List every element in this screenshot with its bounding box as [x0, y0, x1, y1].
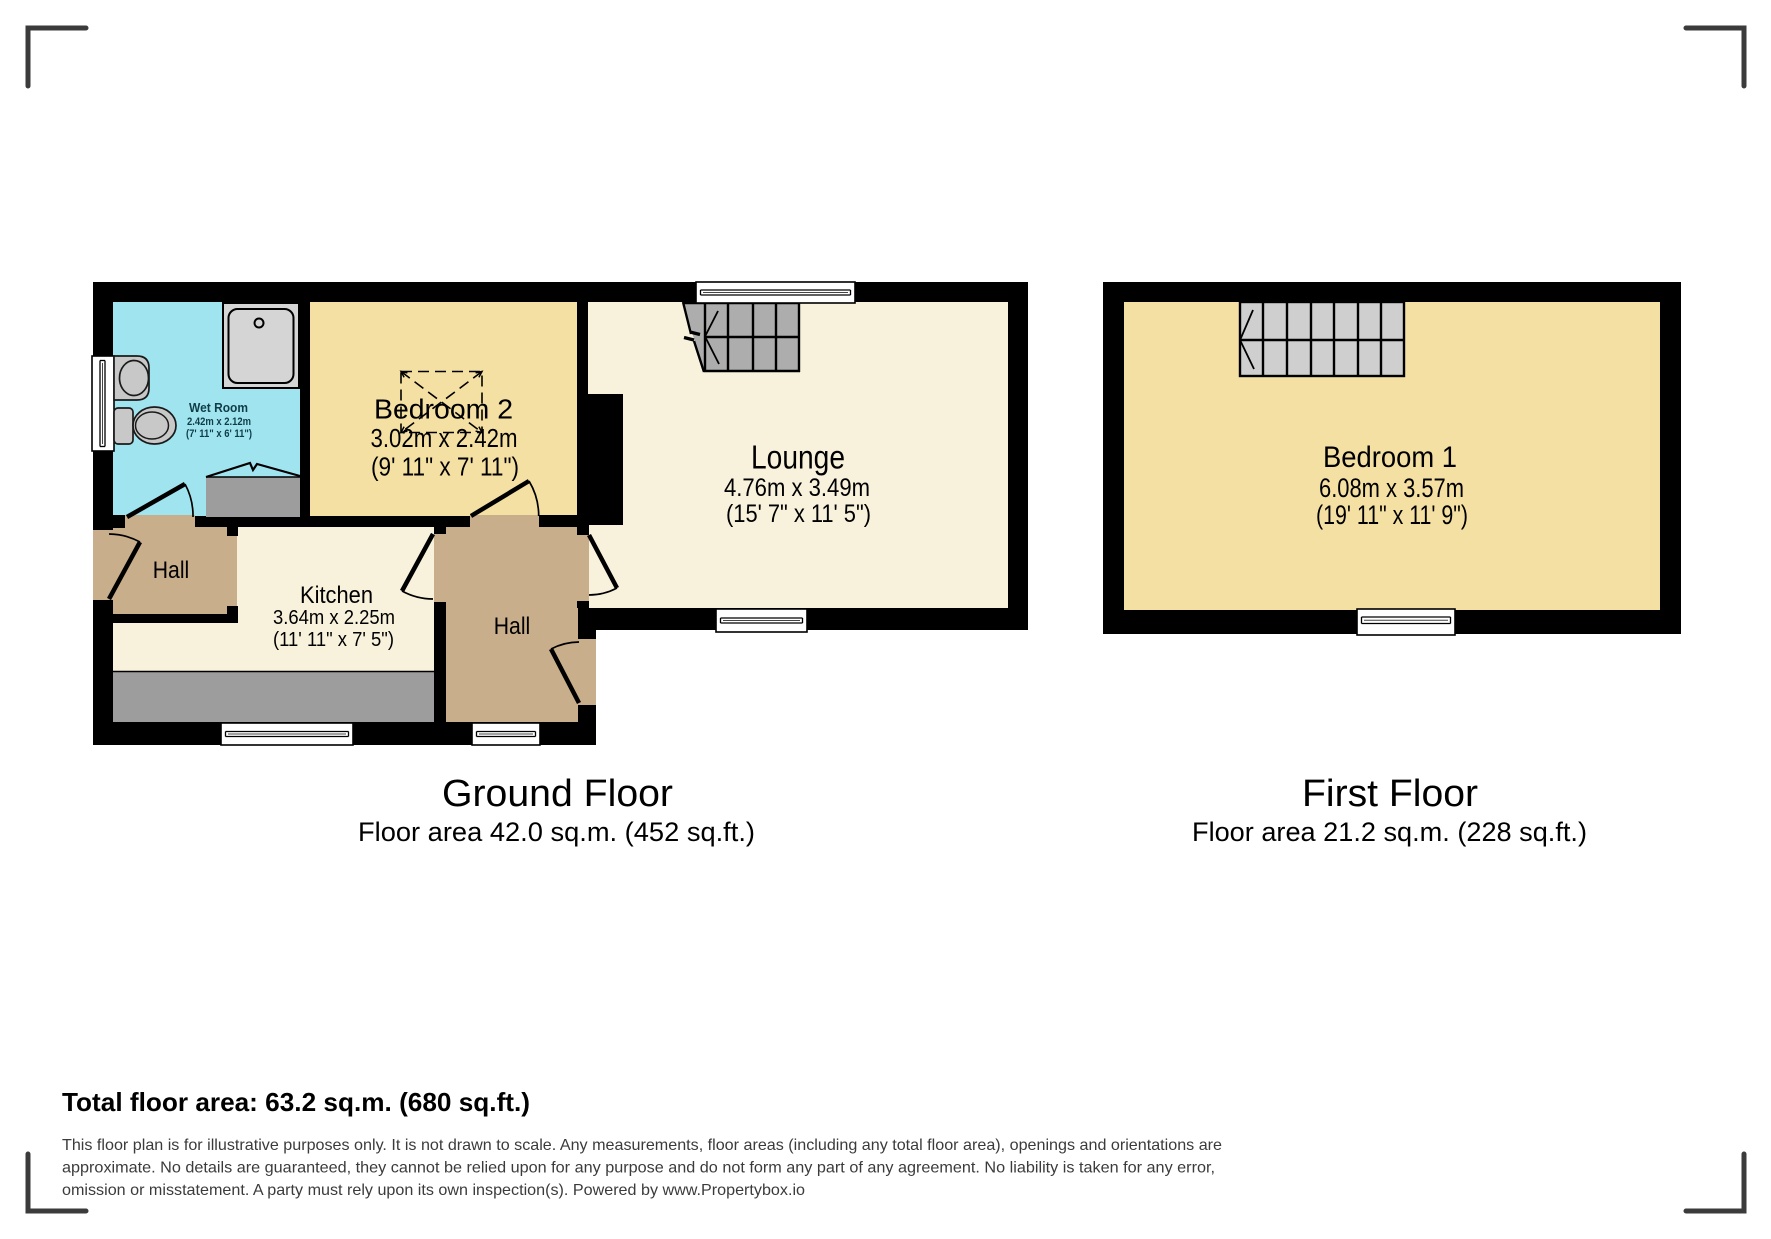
svg-text:Floor area 21.2 sq.m. (228 sq.: Floor area 21.2 sq.m. (228 sq.ft.)	[1192, 817, 1587, 847]
svg-text:Kitchen: Kitchen	[300, 582, 373, 609]
svg-text:(19' 11" x 11' 9"): (19' 11" x 11' 9")	[1316, 500, 1468, 530]
svg-text:approximate. No details are gu: approximate. No details are guaranteed, …	[62, 1160, 1215, 1177]
svg-text:omission or misstatement. A pa: omission or misstatement. A party must r…	[62, 1182, 805, 1199]
svg-text:(7' 11" x 6' 11"): (7' 11" x 6' 11")	[186, 428, 252, 440]
svg-text:Hall: Hall	[153, 557, 190, 584]
svg-text:(11' 11" x 7' 5"): (11' 11" x 7' 5")	[273, 629, 394, 651]
svg-text:4.76m x 3.49m: 4.76m x 3.49m	[724, 474, 870, 502]
svg-text:6.08m x 3.57m: 6.08m x 3.57m	[1319, 473, 1464, 503]
svg-text:3.64m x 2.25m: 3.64m x 2.25m	[273, 607, 395, 629]
svg-text:Lounge: Lounge	[751, 439, 845, 476]
svg-text:(9' 11" x 7' 11"): (9' 11" x 7' 11")	[371, 454, 519, 482]
svg-text:Total floor area: 63.2 sq.m. (: Total floor area: 63.2 sq.m. (680 sq.ft.…	[62, 1087, 530, 1117]
svg-text:Ground Floor: Ground Floor	[442, 773, 673, 815]
svg-text:Hall: Hall	[494, 613, 531, 640]
svg-text:Wet Room: Wet Room	[189, 401, 248, 415]
svg-text:3.02m x 2.42m: 3.02m x 2.42m	[371, 425, 518, 453]
svg-text:This floor plan is for illustr: This floor plan is for illustrative purp…	[62, 1137, 1222, 1154]
svg-text:(15' 7" x 11' 5"): (15' 7" x 11' 5")	[726, 500, 871, 528]
svg-text:2.42m x 2.12m: 2.42m x 2.12m	[187, 416, 251, 428]
svg-text:Bedroom 1: Bedroom 1	[1323, 441, 1457, 474]
svg-text:First Floor: First Floor	[1302, 773, 1478, 815]
svg-text:Floor area 42.0 sq.m. (452 sq.: Floor area 42.0 sq.m. (452 sq.ft.)	[358, 817, 755, 847]
svg-text:Bedroom 2: Bedroom 2	[374, 394, 513, 425]
